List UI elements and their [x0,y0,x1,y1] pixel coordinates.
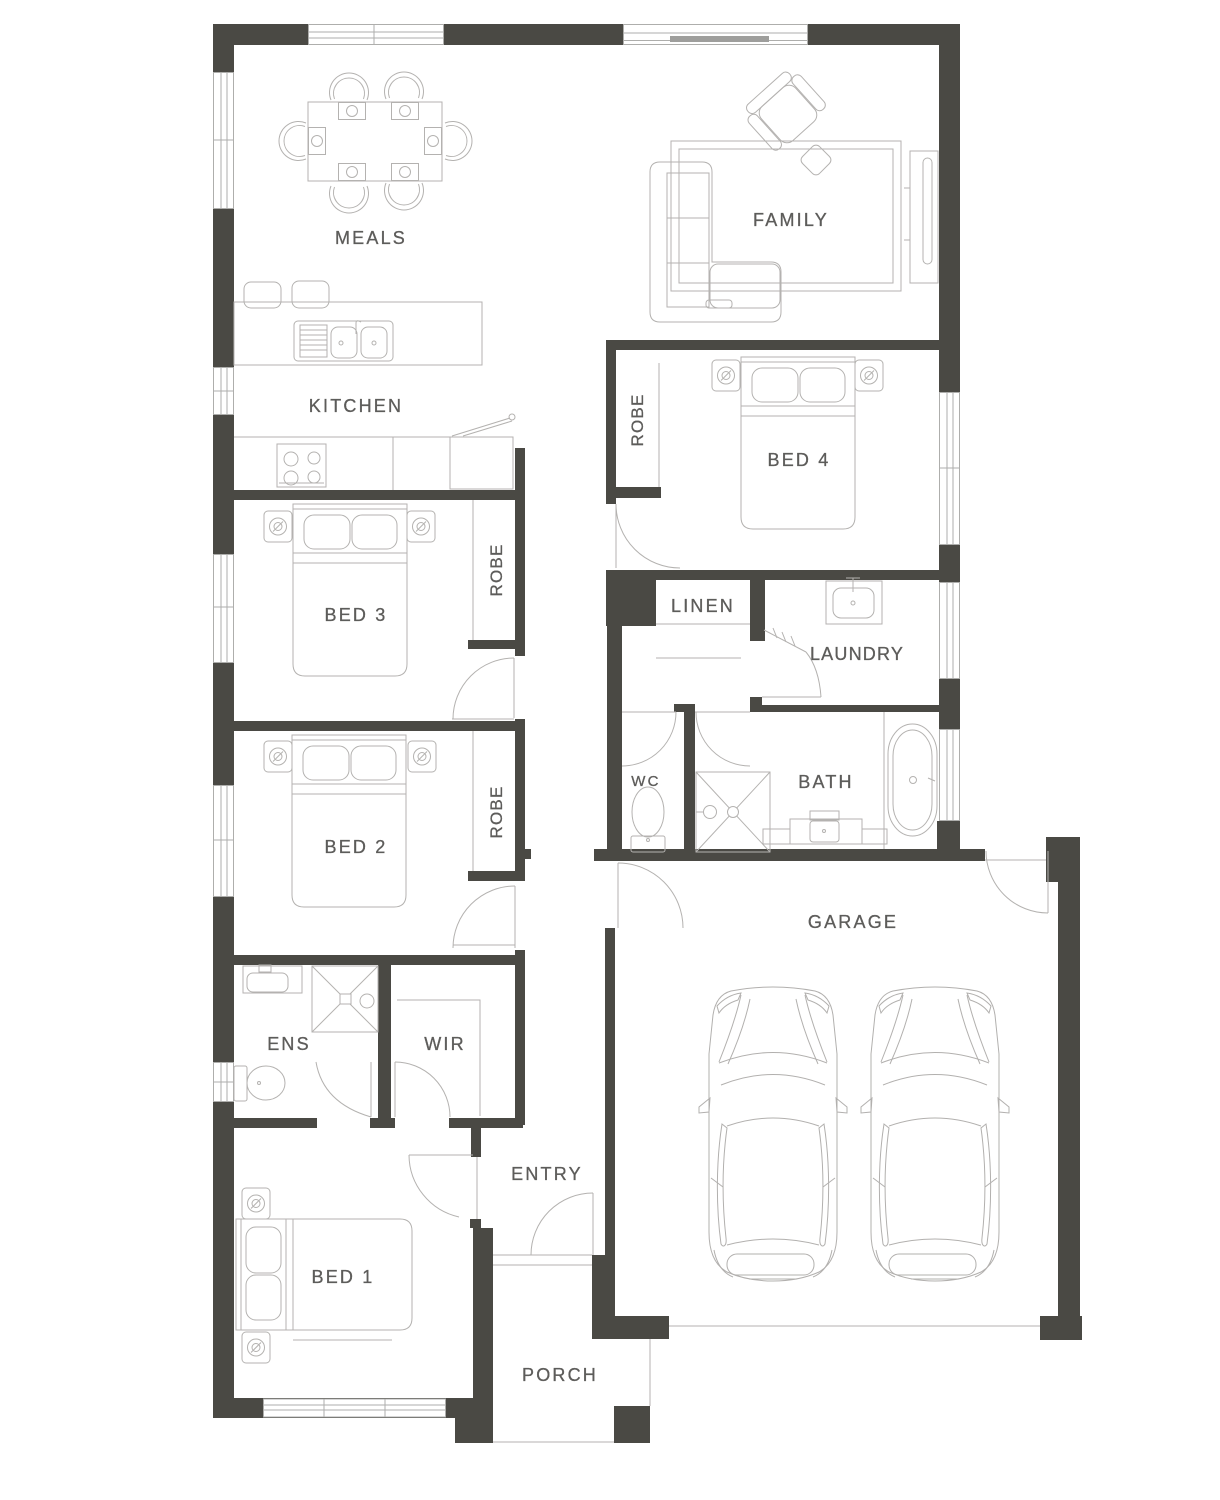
svg-text:BED 3: BED 3 [324,605,387,625]
svg-text:FAMILY: FAMILY [753,210,829,230]
svg-text:MEALS: MEALS [335,228,407,248]
svg-text:LAUNDRY: LAUNDRY [810,644,904,664]
svg-text:ENTRY: ENTRY [511,1164,583,1184]
svg-text:BED 1: BED 1 [311,1267,374,1287]
svg-text:KITCHEN: KITCHEN [309,396,403,416]
svg-text:ENS: ENS [267,1034,311,1054]
svg-text:BED 4: BED 4 [767,450,830,470]
svg-text:ROBE: ROBE [628,394,647,447]
svg-text:PORCH: PORCH [522,1365,598,1385]
svg-text:ROBE: ROBE [487,544,506,597]
svg-text:BATH: BATH [798,772,853,792]
svg-text:BED 2: BED 2 [324,837,387,857]
svg-text:WIR: WIR [424,1034,466,1054]
svg-text:GARAGE: GARAGE [808,912,898,932]
svg-text:LINEN: LINEN [671,596,735,616]
svg-text:ROBE: ROBE [487,786,506,839]
svg-text:WC: WC [631,773,660,790]
